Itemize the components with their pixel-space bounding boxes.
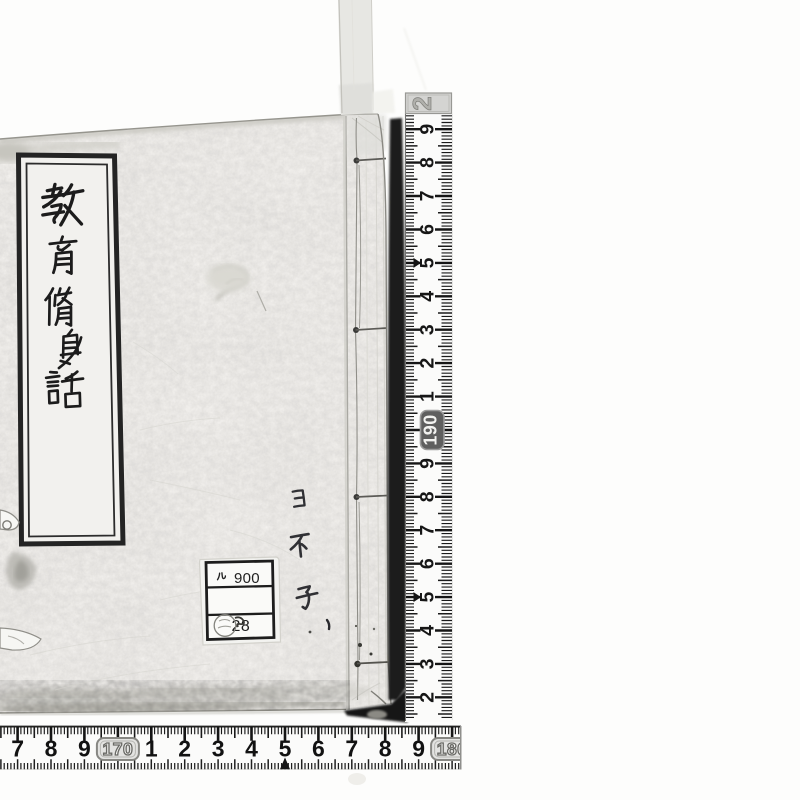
svg-text:2: 2 (407, 96, 437, 110)
svg-text:7: 7 (11, 736, 24, 762)
svg-text:170: 170 (103, 739, 134, 759)
svg-text:4: 4 (417, 625, 439, 636)
svg-text:4: 4 (417, 291, 439, 302)
svg-text:2: 2 (417, 692, 439, 703)
svg-text:190: 190 (421, 414, 441, 445)
svg-text:9: 9 (78, 736, 91, 762)
svg-text:9: 9 (417, 458, 439, 469)
svg-text:7: 7 (345, 736, 358, 762)
svg-text:7: 7 (417, 525, 439, 536)
svg-text:7: 7 (417, 191, 439, 202)
svg-text:4: 4 (245, 736, 258, 762)
svg-text:2: 2 (417, 358, 439, 369)
svg-text:8: 8 (379, 736, 392, 762)
svg-text:8: 8 (45, 736, 58, 762)
svg-text:900: 900 (234, 570, 260, 587)
svg-text:1: 1 (145, 736, 158, 762)
svg-text:8: 8 (417, 491, 439, 502)
svg-text:6: 6 (312, 736, 325, 762)
svg-text:3: 3 (417, 324, 439, 335)
svg-text:1: 1 (417, 391, 439, 402)
svg-text:6: 6 (417, 224, 439, 235)
svg-text:5: 5 (279, 736, 292, 762)
svg-text:8: 8 (417, 157, 439, 168)
svg-text:2: 2 (178, 736, 191, 762)
svg-text:9: 9 (417, 124, 439, 135)
svg-text:6: 6 (417, 558, 439, 569)
svg-text:3: 3 (417, 658, 439, 669)
svg-text:3: 3 (212, 736, 225, 762)
svg-text:9: 9 (412, 736, 425, 762)
